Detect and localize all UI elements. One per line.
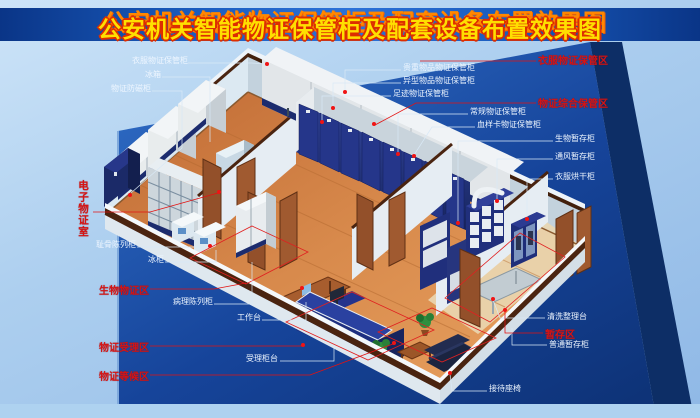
zone-label-electronic-evidence-room: 电子物证室 [76, 180, 91, 240]
label-bio-temp-cabinet: 生物暂存柜 [555, 135, 595, 144]
label-workbench: 工作台 [237, 314, 261, 323]
label-pathology-cabinet: 病理陈列柜 [173, 298, 213, 307]
label-irregular-items-cabinet: 异型物品物证保管柜 [403, 77, 475, 86]
label-ordinary-temp-cabinet: 普通暂存柜 [549, 341, 589, 350]
zone-label-clothing-storage: 衣服物证保管区 [538, 52, 608, 67]
label-refrigerator: 冰箱 [145, 71, 161, 80]
label-cleaning-table: 清洗整理台 [547, 313, 587, 322]
label-reception-counter: 受理柜台 [246, 355, 278, 364]
label-clothing-cabinet: 衣服物证保管柜 [132, 57, 188, 66]
label-blood-sample-cabinet: 血样卡物证保管柜 [477, 121, 541, 130]
zone-label-acceptance: 物证受理区 [99, 339, 149, 354]
poster-canvas: 公安机关智能物证保管柜及配套设备布置效果图 衣服物证保管柜 冰箱 物证防磁柜 耻… [0, 0, 700, 418]
label-footprint-cabinet: 足迹物证保管柜 [393, 90, 449, 99]
label-ventilation-temp-cabinet: 通风暂存柜 [555, 153, 595, 162]
label-clothes-drying-cabinet: 衣服烘干柜 [555, 173, 595, 182]
label-bone-display-cabinet: 耻骨陈列柜 [96, 241, 136, 250]
label-valuables-cabinet: 贵重物品物证保管柜 [403, 64, 475, 73]
label-antimagnetic-cabinet: 物证防磁柜 [111, 85, 151, 94]
page-title: 公安机关智能物证保管柜及配套设备布置效果图 [0, 10, 700, 44]
zone-label-biological-evidence: 生物物证区 [99, 282, 149, 297]
zone-label-waiting: 物证等候区 [99, 368, 149, 383]
label-regular-cabinet: 常规物证保管柜 [470, 108, 526, 117]
zone-label-temporary-storage: 暂存区 [545, 326, 575, 341]
zone-label-comprehensive-storage: 物证综合保管区 [538, 95, 608, 110]
label-freezer: 冰柜 [148, 256, 164, 265]
label-reception-seats: 接待座椅 [489, 385, 521, 394]
